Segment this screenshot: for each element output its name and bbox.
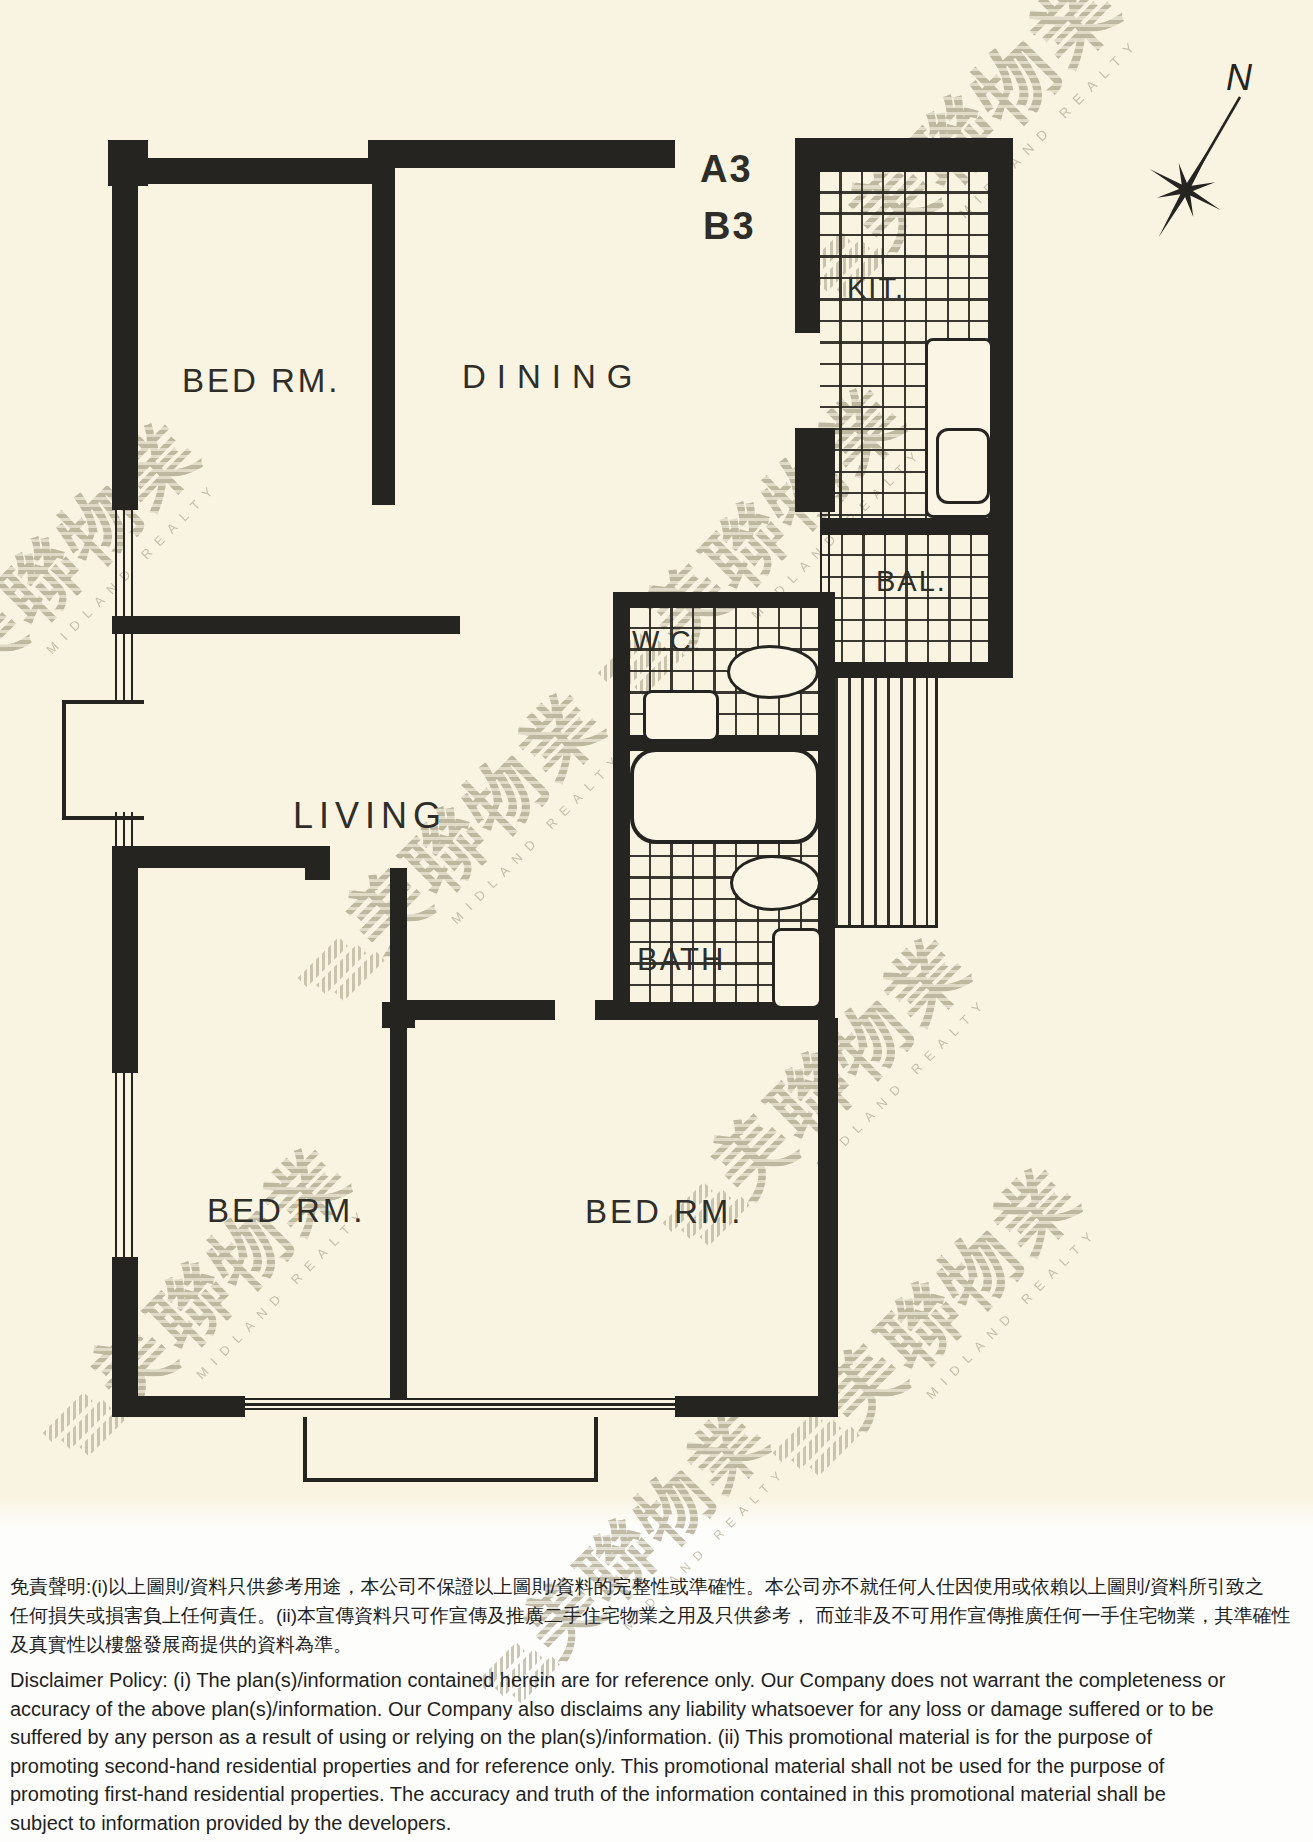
bay-window <box>62 700 144 820</box>
wall-segment <box>112 616 460 634</box>
room-label-bedroom-bottom-left: BED RM. <box>207 1192 366 1230</box>
wall-segment <box>595 1000 615 1020</box>
room-label-living: LIVING <box>293 795 447 837</box>
wc-sink <box>643 690 719 742</box>
bath-sink <box>772 928 822 1009</box>
room-label-kitchen: KIT. <box>847 272 905 305</box>
disclaimer-en-line: suffered by any person as a result of us… <box>10 1723 1308 1752</box>
compass-north-label: N <box>1226 57 1253 98</box>
window <box>115 1073 135 1257</box>
watermark-latin-text: MIDLAND REALTY <box>813 993 992 1172</box>
wall-segment <box>112 846 330 868</box>
wall-segment <box>795 138 1013 172</box>
window <box>115 510 135 616</box>
wall-segment <box>112 1257 138 1417</box>
wall-segment <box>613 592 630 1018</box>
watermark-cjk-text: 美聯物業 <box>0 407 214 693</box>
wall-segment <box>818 1018 838 1417</box>
unit-label-b3: B3 <box>703 205 756 248</box>
wall-segment <box>795 428 835 512</box>
window <box>820 512 836 662</box>
wall-segment <box>112 158 138 510</box>
bay-window <box>303 1417 598 1482</box>
wall-segment <box>372 158 395 505</box>
wall-segment <box>820 518 1002 535</box>
room-label-balcony: BAL. <box>876 565 947 598</box>
disclaimer-zh-line: 任何損失或損害負上任何責任。(ii)本宣傳資料只可作宣傳及推廣二手住宅物業之用及… <box>10 1601 1308 1630</box>
wall-segment <box>407 1000 555 1020</box>
wall-segment <box>613 592 835 608</box>
wall-segment <box>675 1396 838 1417</box>
disclaimer-en-line: accuracy of the above plan(s)/informatio… <box>10 1695 1308 1724</box>
balcony-railing <box>835 678 938 928</box>
watermark-latin-text: MIDLAND REALTY <box>193 1203 372 1382</box>
balcony-tile-floor <box>822 535 988 662</box>
room-label-wc: W.C. <box>632 625 703 658</box>
compass-rose-icon: N <box>1090 42 1290 242</box>
watermark-latin-text: MIDLAND REALTY <box>448 748 627 927</box>
watermark-latin-text: MIDLAND REALTY <box>923 1223 1102 1402</box>
disclaimer-en-line: subject to information provided by the d… <box>10 1809 1308 1838</box>
disclaimer-en-line: promoting second-hand residential proper… <box>10 1752 1308 1781</box>
floor-plan-page: 美聯物業 MIDLAND REALTY 美聯物業 MIDLAND REALTY … <box>0 0 1313 1842</box>
disclaimer-en-line: Disclaimer Policy: (i) The plan(s)/infor… <box>10 1666 1308 1695</box>
unit-label-a3: A3 <box>700 148 753 191</box>
kitchen-sink <box>936 428 990 504</box>
wall-segment <box>795 138 820 333</box>
wall-segment <box>112 616 138 634</box>
midland-watermark: 美聯物業 MIDLAND REALTY <box>0 366 294 783</box>
bathtub <box>630 748 820 844</box>
wall-segment <box>112 853 138 1073</box>
room-label-bath: BATH <box>637 942 725 978</box>
disclaimer-zh-line: 及真實性以樓盤發展商提供的資料為準。 <box>10 1630 1308 1659</box>
midland-logo-bars-icon <box>294 922 385 1013</box>
room-label-dining: DINING <box>462 358 644 396</box>
window <box>115 634 135 700</box>
room-label-bedroom-top: BED RM. <box>182 362 341 400</box>
wall-segment <box>390 868 407 1398</box>
watermark-cjk-text: 美聯物業 <box>809 1152 1095 1438</box>
disclaimer-zh-line: 免責聲明:(i)以上圖則/資料只供參考用途，本公司不保證以上圖則/資料的完整性或… <box>10 1572 1308 1601</box>
room-label-bedroom-bottom-right: BED RM. <box>585 1193 744 1231</box>
wall-segment <box>822 662 1002 678</box>
disclaimer-en-line: promoting first-hand residential propert… <box>10 1780 1308 1809</box>
disclaimer-block: 免責聲明:(i)以上圖則/資料只供參考用途，本公司不保證以上圖則/資料的完整性或… <box>10 1572 1308 1837</box>
wall-segment <box>305 846 330 880</box>
wall-segment <box>368 140 675 168</box>
window <box>245 1398 675 1410</box>
wall-segment <box>112 158 392 184</box>
